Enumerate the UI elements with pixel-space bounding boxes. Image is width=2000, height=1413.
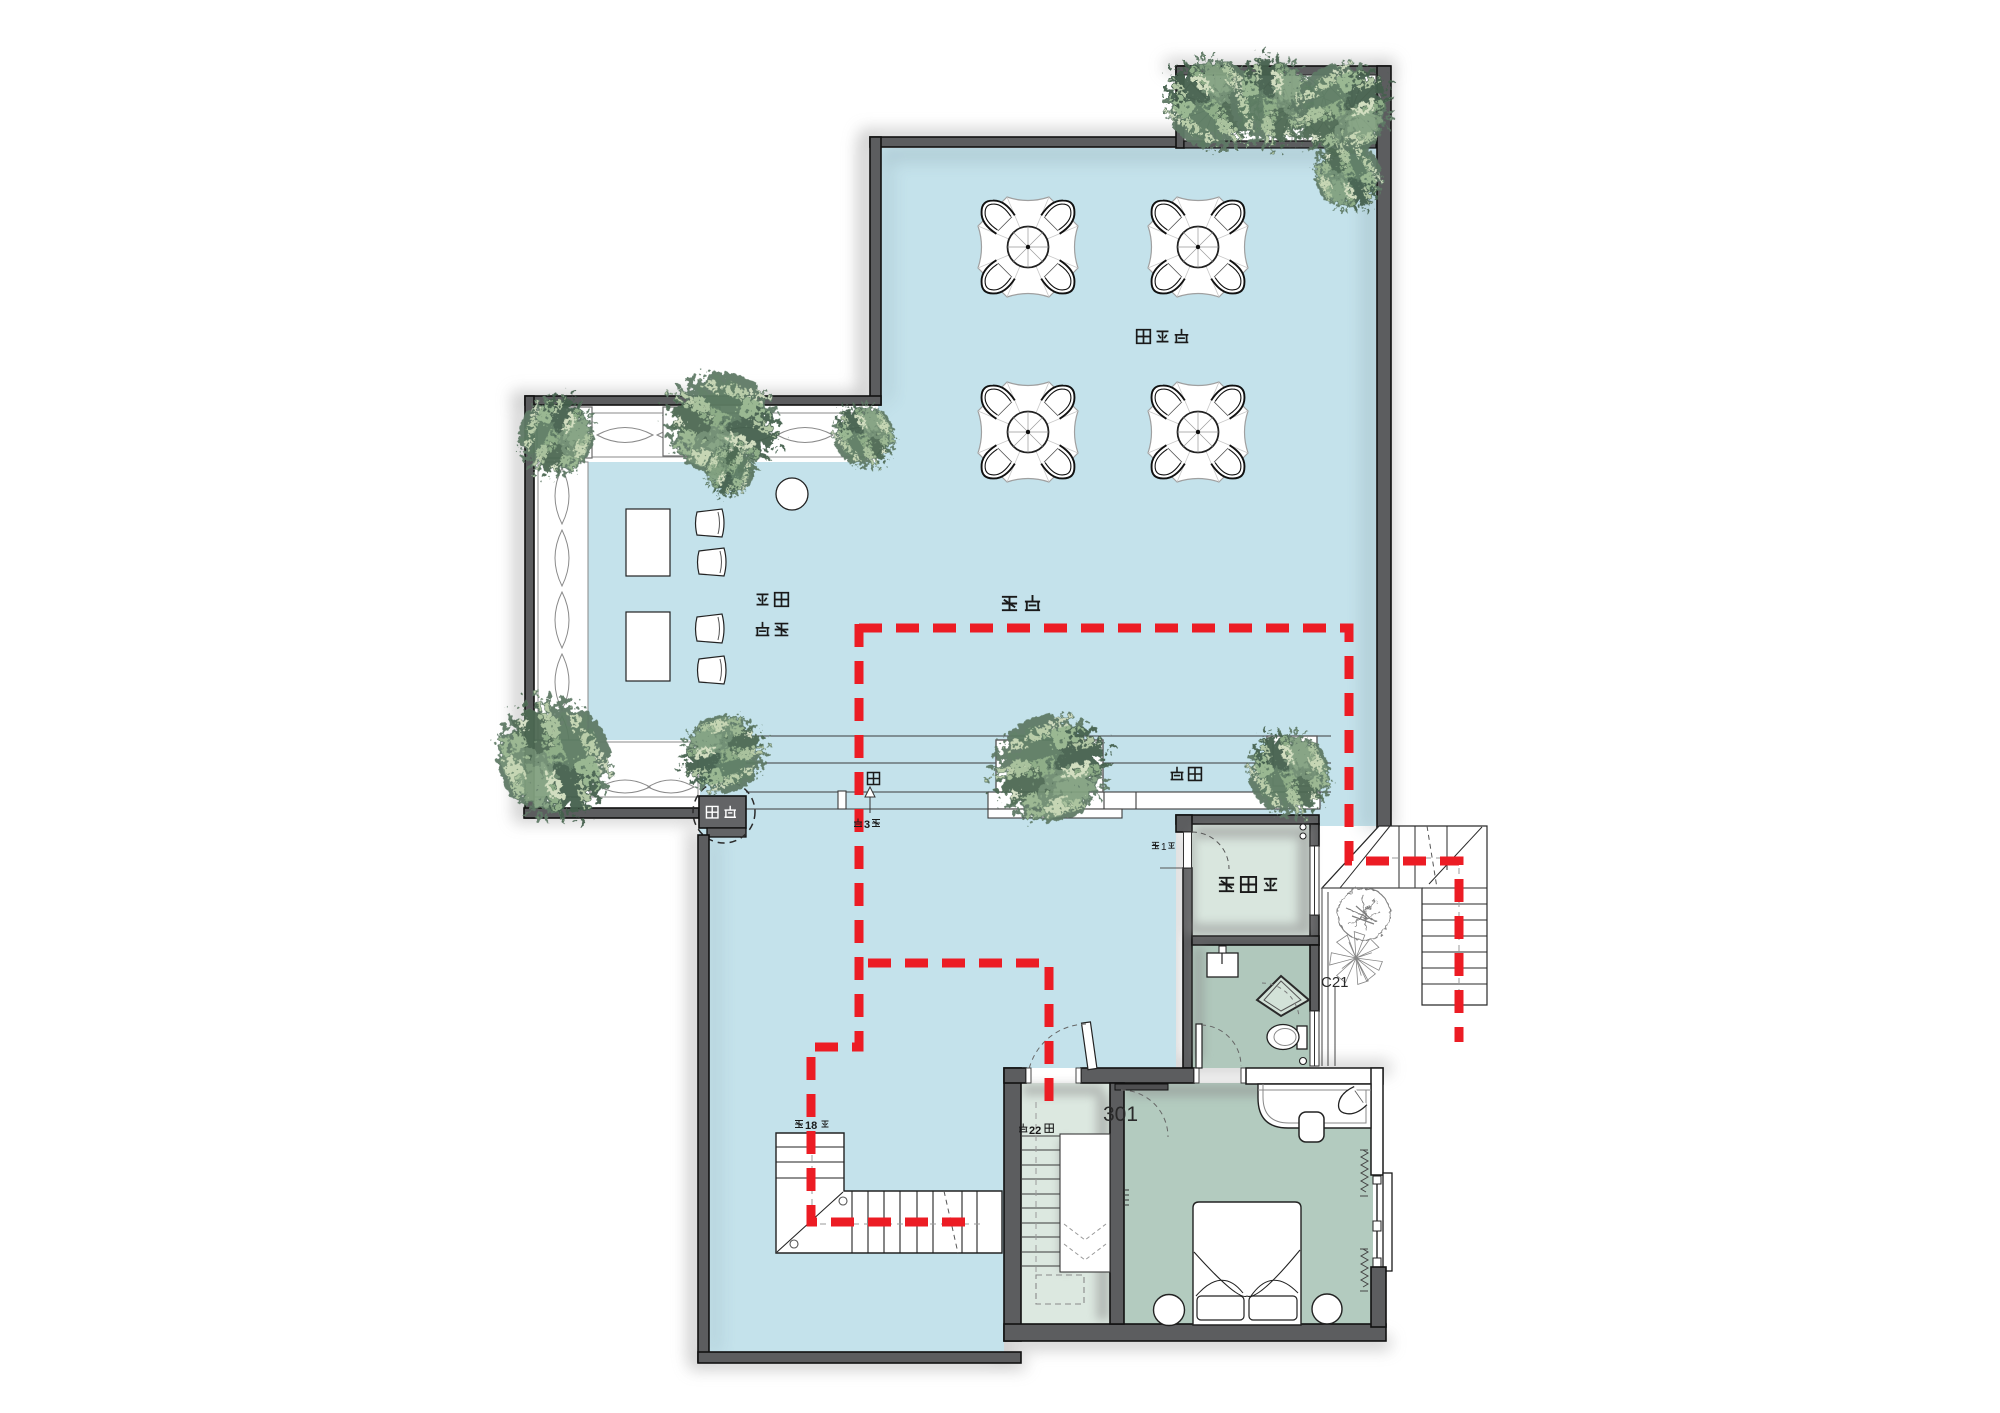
svg-text:C21: C21 [1321, 974, 1349, 991]
svg-text:3: 3 [864, 819, 870, 831]
svg-text:22: 22 [1029, 1125, 1041, 1137]
svg-text:1: 1 [1161, 842, 1167, 853]
svg-text:18: 18 [805, 1120, 817, 1132]
svg-text:301: 301 [1103, 1103, 1138, 1126]
